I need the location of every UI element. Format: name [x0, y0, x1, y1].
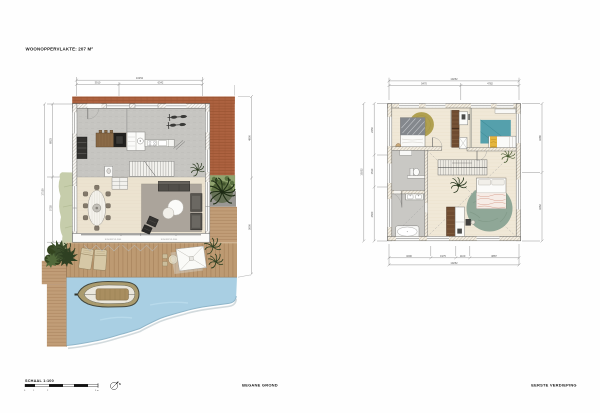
svg-text:10252: 10252	[360, 168, 364, 176]
svg-text:3910: 3910	[95, 80, 101, 84]
svg-text:EERSTE VERDIEPING: EERSTE VERDIEPING	[531, 383, 577, 388]
svg-text:3262: 3262	[538, 204, 542, 210]
svg-text:3280: 3280	[538, 135, 542, 141]
svg-text:6823: 6823	[48, 138, 52, 144]
svg-text:5470: 5470	[421, 82, 427, 86]
svg-text:17150: 17150	[40, 188, 44, 196]
svg-text:1100: 1100	[460, 254, 466, 258]
svg-text:10252: 10252	[136, 76, 144, 80]
svg-text:SCHUIFPUI 4500: SCHUIFPUI 4500	[105, 239, 122, 241]
svg-text:2560: 2560	[370, 211, 374, 217]
svg-text:5 m: 5 m	[95, 390, 99, 392]
svg-text:BEGANE GROND: BEGANE GROND	[242, 383, 278, 388]
svg-text:3290: 3290	[406, 254, 412, 258]
svg-text:WOONOPPERVLAKTE: 207 M²: WOONOPPERVLAKTE: 207 M²	[26, 47, 94, 52]
svg-text:N: N	[119, 382, 121, 386]
svg-text:1975: 1975	[440, 254, 446, 258]
svg-text:4800: 4800	[247, 135, 251, 141]
svg-text:10252: 10252	[450, 261, 458, 265]
svg-text:6342: 6342	[158, 80, 164, 84]
svg-text:2450: 2450	[370, 127, 374, 133]
svg-text:4782: 4782	[487, 82, 493, 86]
svg-text:1530: 1530	[370, 168, 374, 174]
svg-text:SCHAAL 1:100: SCHAAL 1:100	[25, 379, 54, 383]
svg-text:3887: 3887	[491, 254, 497, 258]
svg-text:5600: 5600	[247, 224, 251, 230]
svg-text:5755: 5755	[48, 205, 52, 211]
svg-text:10252: 10252	[450, 77, 458, 81]
svg-text:SCHUIFPUI 4500: SCHUIFPUI 4500	[161, 239, 178, 241]
